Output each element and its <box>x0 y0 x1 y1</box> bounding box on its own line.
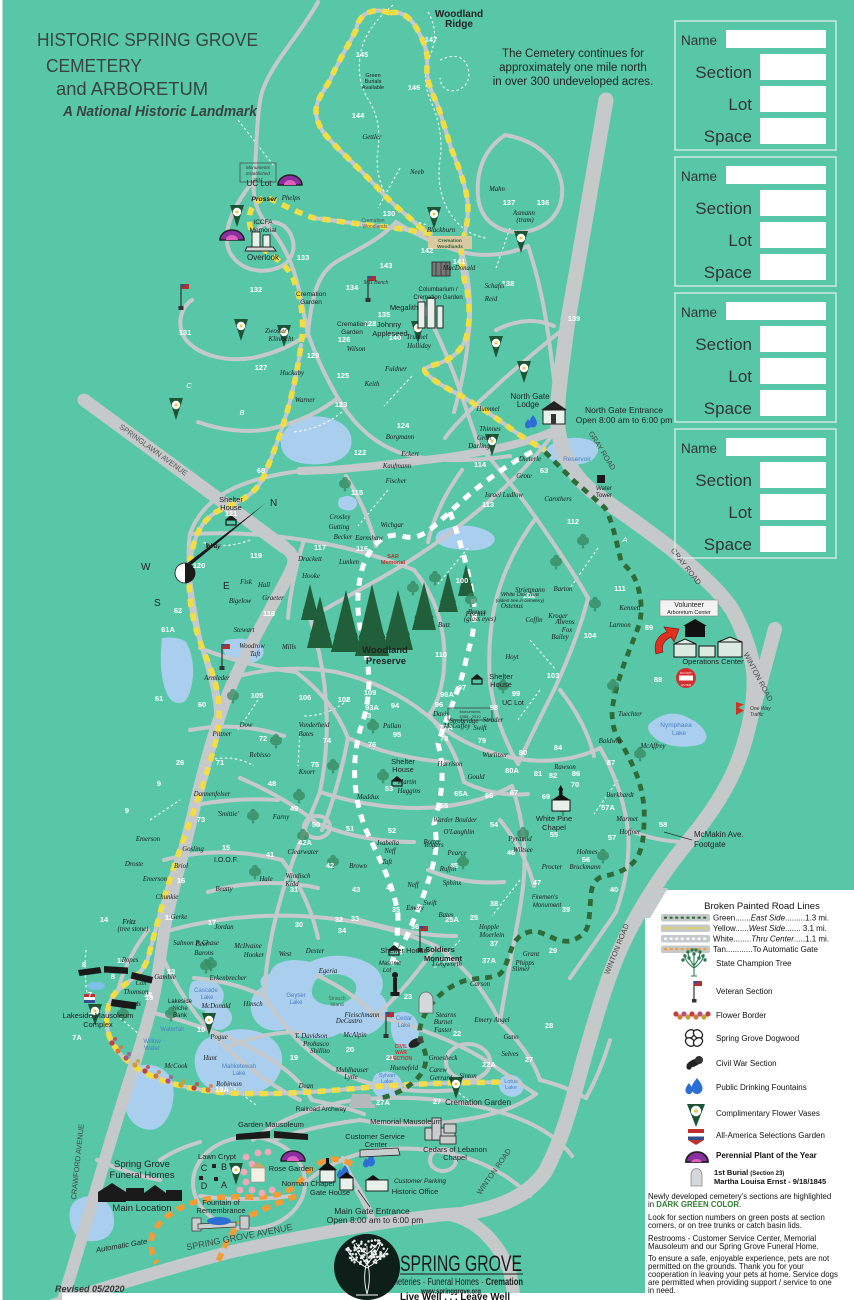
svg-text:Muhlhauser: Muhlhauser <box>335 1067 369 1074</box>
svg-text:Emerson: Emerson <box>142 876 168 883</box>
svg-text:81: 81 <box>534 769 542 778</box>
svg-text:Lake: Lake <box>232 1071 246 1077</box>
svg-text:Graeter: Graeter <box>262 595 284 602</box>
svg-text:Bates: Bates <box>298 731 313 738</box>
svg-text:Nymphaea: Nymphaea <box>660 722 692 729</box>
svg-text:Cascade: Cascade <box>194 988 218 994</box>
svg-text:38: 38 <box>490 899 498 908</box>
svg-text:Dieterle: Dieterle <box>518 456 541 463</box>
svg-text:Memorial: Memorial <box>381 560 406 566</box>
svg-text:8: 8 <box>82 960 86 969</box>
svg-text:Lake: Lake <box>200 995 214 1001</box>
svg-text:7A: 7A <box>72 1033 82 1042</box>
svg-text:in need.: in need. <box>648 1286 676 1295</box>
svg-text:57: 57 <box>608 833 616 842</box>
svg-text:(oldest tree in cemetery): (oldest tree in cemetery) <box>496 598 545 603</box>
svg-text:Gate House: Gate House <box>310 1188 350 1197</box>
svg-text:corners, or on tree trunks or: corners, or on tree trunks or catch basi… <box>648 1221 802 1230</box>
svg-text:Woodland: Woodland <box>362 645 408 656</box>
svg-text:Rawson: Rawson <box>553 764 576 771</box>
svg-text:146: 146 <box>408 83 421 92</box>
svg-text:Geyser: Geyser <box>286 993 305 999</box>
svg-text:Section: Section <box>695 335 752 354</box>
svg-text:Available: Available <box>362 85 384 91</box>
svg-text:UC Lot: UC Lot <box>502 700 524 707</box>
svg-text:28: 28 <box>545 1021 553 1030</box>
svg-text:98: 98 <box>490 703 498 712</box>
svg-text:N: N <box>270 498 277 509</box>
svg-text:7: 7 <box>88 990 92 999</box>
svg-text:Center: Center <box>365 1140 388 1149</box>
svg-text:78: 78 <box>440 734 448 743</box>
svg-text:(tree stone): (tree stone) <box>118 926 150 933</box>
svg-text:Schafer: Schafer <box>485 283 506 290</box>
svg-text:Taft: Taft <box>382 859 393 866</box>
svg-text:Zwoster: Zwoster <box>265 328 287 335</box>
svg-text:Lunken: Lunken <box>338 559 360 566</box>
svg-text:E: E <box>223 581 230 592</box>
svg-text:Strader: Strader <box>483 717 504 724</box>
svg-text:49: 49 <box>290 804 298 813</box>
svg-text:Name: Name <box>681 169 717 184</box>
svg-text:39: 39 <box>562 905 570 914</box>
svg-text:27A: 27A <box>376 1098 390 1107</box>
svg-text:Chapel: Chapel <box>542 823 566 832</box>
svg-text:Burkhardt: Burkhardt <box>606 792 635 799</box>
svg-text:C: C <box>201 1163 208 1173</box>
svg-text:Woodlands: Woodlands <box>363 224 388 230</box>
svg-text:Cremation Garden: Cremation Garden <box>445 1098 511 1107</box>
svg-text:35: 35 <box>392 905 400 914</box>
svg-text:Lot: Lot <box>728 503 752 522</box>
svg-text:Dexter: Dexter <box>305 948 325 955</box>
svg-text:House: House <box>220 503 242 512</box>
svg-text:Lake: Lake <box>289 1000 303 1006</box>
svg-text:Eckert: Eckert <box>400 451 420 458</box>
svg-text:Lakeside: Lakeside <box>168 999 193 1005</box>
svg-text:Chunkie: Chunkie <box>156 894 179 901</box>
svg-text:Historic Office: Historic Office <box>392 1187 439 1196</box>
svg-text:58: 58 <box>659 820 667 829</box>
svg-text:Davis: Davis <box>432 711 449 718</box>
svg-text:Sphinx: Sphinx <box>443 880 462 887</box>
svg-text:88: 88 <box>654 675 662 684</box>
svg-text:Grant: Grant <box>523 951 540 958</box>
svg-text:DO NOT: DO NOT <box>680 671 692 675</box>
svg-text:ICCFA: ICCFA <box>253 219 273 226</box>
svg-text:Emery Angel: Emery Angel <box>473 1017 509 1024</box>
svg-text:Dow: Dow <box>239 722 253 729</box>
svg-text:House: House <box>490 680 512 689</box>
svg-text:Briol: Briol <box>174 863 188 870</box>
svg-text:135: 135 <box>378 310 391 319</box>
svg-text:State Champion Tree: State Champion Tree <box>716 959 792 968</box>
svg-text:Baldwin: Baldwin <box>599 738 622 745</box>
svg-text:Main Location: Main Location <box>112 1203 171 1214</box>
svg-text:63: 63 <box>540 466 548 475</box>
svg-text:A: A <box>621 535 627 544</box>
svg-text:Huckaby: Huckaby <box>279 370 305 377</box>
svg-text:Armleder: Armleder <box>203 675 230 682</box>
svg-text:16: 16 <box>177 876 185 885</box>
svg-text:Lakeside Mausoleum: Lakeside Mausoleum <box>63 1011 134 1020</box>
svg-text:22: 22 <box>453 1029 461 1038</box>
svg-text:Slimer: Slimer <box>512 966 530 973</box>
svg-text:Railroad Archway: Railroad Archway <box>296 1106 347 1113</box>
svg-text:33: 33 <box>351 914 359 923</box>
svg-text:37A: 37A <box>482 956 496 965</box>
svg-text:Mahn: Mahn <box>488 186 505 193</box>
svg-text:Gosling: Gosling <box>182 846 204 853</box>
svg-text:117: 117 <box>314 543 326 552</box>
svg-text:Lot: Lot <box>383 968 392 974</box>
svg-text:15: 15 <box>222 843 230 852</box>
svg-text:104: 104 <box>584 631 597 640</box>
svg-text:D: D <box>201 1181 208 1191</box>
svg-text:Hopple: Hopple <box>478 924 499 931</box>
svg-text:47: 47 <box>533 878 541 887</box>
svg-text:Bates: Bates <box>438 912 453 919</box>
svg-text:30: 30 <box>295 920 303 929</box>
svg-text:Fuldner: Fuldner <box>384 366 407 373</box>
svg-text:Groh: Groh <box>477 435 492 442</box>
svg-text:Monument: Monument <box>533 903 562 909</box>
svg-text:A: A <box>221 1180 227 1190</box>
svg-text:Procter: Procter <box>541 864 563 871</box>
svg-text:Dannenfelser: Dannenfelser <box>193 791 231 798</box>
svg-text:Neeb: Neeb <box>409 169 425 176</box>
svg-text:79: 79 <box>478 736 486 745</box>
svg-text:41: 41 <box>266 850 274 859</box>
svg-text:Bigelow: Bigelow <box>229 598 252 605</box>
svg-text:147: 147 <box>425 35 438 44</box>
svg-text:in DARK GREEN COLOR.: in DARK GREEN COLOR. <box>648 1200 741 1209</box>
svg-text:36: 36 <box>411 922 419 931</box>
svg-text:Lot: Lot <box>728 95 752 114</box>
svg-text:Island: Island <box>330 1002 344 1008</box>
svg-text:137: 137 <box>503 198 516 207</box>
svg-text:Complimentary Flower Vases: Complimentary Flower Vases <box>716 1109 820 1118</box>
svg-text:Traffic: Traffic <box>750 712 764 718</box>
svg-text:Fisk: Fisk <box>239 579 253 586</box>
svg-text:Sinton: Sinton <box>459 1073 477 1080</box>
svg-text:O'Laughlin: O'Laughlin <box>444 829 476 836</box>
svg-text:Public Drinking Fountains: Public Drinking Fountains <box>716 1083 807 1092</box>
svg-text:67: 67 <box>510 788 518 797</box>
svg-text:Becker: Becker <box>334 534 353 541</box>
svg-text:Section: Section <box>695 63 752 82</box>
svg-text:Burnet: Burnet <box>434 1019 454 1026</box>
svg-text:Johnny: Johnny <box>377 320 401 329</box>
svg-text:Klinkicht: Klinkicht <box>268 336 295 343</box>
svg-text:144: 144 <box>352 111 365 120</box>
svg-text:Mausoleum and our Spring Grove: Mausoleum and our Spring Grove Funeral H… <box>648 1242 819 1251</box>
svg-text:8: 8 <box>111 972 115 981</box>
svg-text:Asmann: Asmann <box>512 210 536 217</box>
svg-text:Flower Border: Flower Border <box>716 1011 767 1020</box>
svg-text:Garden Mausoleum: Garden Mausoleum <box>238 1120 304 1129</box>
svg-text:Gamble: Gamble <box>154 974 176 981</box>
svg-text:Revised 05/2020: Revised 05/2020 <box>55 1284 125 1294</box>
svg-text:Cremation: Cremation <box>337 321 367 328</box>
svg-text:Megalith: Megalith <box>390 303 418 312</box>
svg-text:Norman Chapel: Norman Chapel <box>282 1179 335 1188</box>
svg-text:Hoyt: Hoyt <box>504 654 519 661</box>
svg-text:111: 111 <box>614 584 626 593</box>
svg-text:51: 51 <box>346 824 354 833</box>
svg-text:Cremation: Cremation <box>296 291 326 298</box>
svg-text:Hale: Hale <box>258 876 272 883</box>
svg-text:23: 23 <box>404 992 412 1001</box>
svg-text:Cedar: Cedar <box>396 1016 412 1022</box>
svg-text:Groesbeck: Groesbeck <box>429 1055 459 1062</box>
svg-text:Moerlein: Moerlein <box>479 932 506 939</box>
svg-text:B: B <box>239 408 244 417</box>
svg-text:Shillito: Shillito <box>310 1048 330 1055</box>
svg-text:34: 34 <box>338 926 347 935</box>
svg-text:Soldiers: Soldiers <box>425 945 455 954</box>
svg-text:Tuechter: Tuechter <box>618 711 642 718</box>
svg-text:Wiltsee: Wiltsee <box>513 847 533 854</box>
svg-text:Fox: Fox <box>561 627 573 634</box>
svg-text:Bruckmann: Bruckmann <box>569 864 601 871</box>
svg-text:Droste: Droste <box>124 861 143 868</box>
svg-text:Breuer: Breuer <box>468 609 487 616</box>
svg-text:Brown: Brown <box>349 863 367 870</box>
svg-text:Perennial Plant of the Year: Perennial Plant of the Year <box>716 1151 817 1160</box>
svg-text:93: 93 <box>363 711 371 720</box>
svg-text:Space: Space <box>704 263 752 282</box>
svg-text:Gettler: Gettler <box>362 134 382 141</box>
svg-text:75: 75 <box>311 760 319 769</box>
svg-text:87: 87 <box>607 758 615 767</box>
svg-text:Beatty: Beatty <box>215 886 233 893</box>
svg-text:Wichgar: Wichgar <box>380 522 403 529</box>
svg-text:94: 94 <box>391 701 400 710</box>
svg-text:Barons: Barons <box>194 950 214 957</box>
svg-text:Carothers: Carothers <box>544 496 572 503</box>
svg-text:Rose Garden: Rose Garden <box>269 1164 314 1173</box>
svg-text:Customer Parking: Customer Parking <box>394 1178 446 1185</box>
svg-text:Appleseed: Appleseed <box>372 329 407 338</box>
svg-text:McAlpin: McAlpin <box>342 1032 367 1039</box>
svg-text:72: 72 <box>259 734 267 743</box>
svg-text:96: 96 <box>435 700 443 709</box>
svg-text:Ruffin: Ruffin <box>439 866 457 873</box>
svg-text:Reid: Reid <box>484 296 498 303</box>
svg-text:130: 130 <box>383 209 396 218</box>
svg-text:Mahketewah: Mahketewah <box>222 1064 256 1070</box>
svg-text:Monuments: Monuments <box>246 165 271 170</box>
svg-text:48: 48 <box>268 779 276 788</box>
svg-text:North Gate Entrance: North Gate Entrance <box>585 405 663 415</box>
svg-text:70: 70 <box>571 780 579 789</box>
svg-text:and ARBORETUM: and ARBORETUM <box>56 78 208 99</box>
svg-text:McMakin Ave.: McMakin Ave. <box>694 830 744 839</box>
svg-text:132: 132 <box>250 285 263 294</box>
svg-text:Hooker: Hooker <box>243 952 265 959</box>
svg-text:Gano: Gano <box>503 1034 519 1041</box>
svg-text:DeCastro: DeCastro <box>335 1018 363 1025</box>
svg-text:C: C <box>186 381 192 390</box>
svg-text:27: 27 <box>525 1055 533 1064</box>
svg-text:Wilson: Wilson <box>347 346 366 353</box>
svg-text:127: 127 <box>255 363 268 372</box>
svg-text:26: 26 <box>176 758 184 767</box>
svg-text:Windisch: Windisch <box>286 873 312 880</box>
svg-text:West: West <box>279 951 293 958</box>
svg-text:53: 53 <box>385 784 393 793</box>
svg-text:142: 142 <box>421 246 434 255</box>
svg-text:133: 133 <box>297 253 310 262</box>
svg-text:Niche: Niche <box>172 1006 188 1012</box>
svg-text:76: 76 <box>368 740 376 749</box>
svg-text:Carson: Carson <box>470 981 491 988</box>
svg-text:Memorial: Memorial <box>250 227 277 234</box>
svg-text:Lake: Lake <box>397 1023 411 1029</box>
svg-text:Lot: Lot <box>728 367 752 386</box>
svg-text:McDonald: McDonald <box>200 1003 231 1010</box>
svg-text:All-America Selections Garden: All-America Selections Garden <box>716 1131 825 1140</box>
svg-text:100: 100 <box>456 576 469 585</box>
svg-text:9: 9 <box>157 779 161 788</box>
svg-text:32: 32 <box>335 915 343 924</box>
svg-text:40: 40 <box>610 885 618 894</box>
svg-text:Gould: Gould <box>468 774 486 781</box>
svg-text:Salmon P. Chase: Salmon P. Chase <box>173 940 219 947</box>
svg-text:Garden: Garden <box>341 329 363 336</box>
svg-text:43: 43 <box>352 885 360 894</box>
svg-text:Dean: Dean <box>298 1083 314 1090</box>
svg-text:Coffin: Coffin <box>526 617 544 624</box>
svg-text:99: 99 <box>512 689 520 698</box>
svg-text:Tower: Tower <box>596 493 612 499</box>
svg-text:Darling: Darling <box>467 443 490 450</box>
svg-text:125: 125 <box>337 371 350 380</box>
svg-text:Space: Space <box>704 399 752 418</box>
svg-text:Knorr: Knorr <box>298 769 316 776</box>
svg-text:84: 84 <box>554 743 563 752</box>
svg-text:Name: Name <box>681 441 717 456</box>
svg-text:42: 42 <box>326 861 334 870</box>
svg-text:Veteran Section: Veteran Section <box>716 987 772 996</box>
svg-text:Garden: Garden <box>300 299 322 306</box>
svg-text:Monument: Monument <box>424 954 462 963</box>
svg-text:Wray: Wray <box>205 543 221 550</box>
svg-text:Warner: Warner <box>295 397 315 404</box>
svg-text:Huenefeld: Huenefeld <box>389 1065 419 1072</box>
svg-text:44: 44 <box>386 883 395 892</box>
svg-text:68: 68 <box>257 466 265 475</box>
svg-text:89: 89 <box>645 623 653 632</box>
svg-text:74: 74 <box>323 736 332 745</box>
svg-text:Warder Boulder: Warder Boulder <box>433 817 477 824</box>
svg-text:Probasco: Probasco <box>302 1041 329 1048</box>
svg-text:Erkenbrecher: Erkenbrecher <box>208 975 246 982</box>
svg-text:Bailey: Bailey <box>551 634 569 641</box>
svg-text:Swift: Swift <box>473 725 488 732</box>
svg-text:Complex: Complex <box>83 1020 113 1029</box>
svg-text:Volunteer: Volunteer <box>674 602 704 609</box>
svg-text:Chapel: Chapel <box>443 1153 467 1162</box>
svg-text:Pyramid: Pyramid <box>507 836 532 843</box>
svg-text:145: 145 <box>356 50 369 59</box>
svg-text:Wurlitzer: Wurlitzer <box>482 752 508 759</box>
svg-text:20: 20 <box>346 1045 354 1054</box>
svg-text:25: 25 <box>470 913 478 922</box>
svg-text:Ahrens: Ahrens <box>554 619 574 626</box>
svg-text:Gerke: Gerke <box>171 914 188 921</box>
svg-text:Trunnel: Trunnel <box>406 334 427 341</box>
svg-text:Huggins: Huggins <box>396 788 420 795</box>
svg-text:Marmet: Marmet <box>615 816 639 823</box>
svg-text:Isabella: Isabella <box>376 840 399 847</box>
svg-text:Green.......East Side.........: Green.......East Side.........1.3 mi. <box>713 914 829 923</box>
svg-text:Farny: Farny <box>272 814 291 821</box>
svg-text:19: 19 <box>290 1053 298 1062</box>
svg-text:Pearce: Pearce <box>447 850 467 857</box>
svg-text:Established: Established <box>246 171 270 176</box>
svg-text:96A: 96A <box>440 690 454 699</box>
svg-text:Holliday: Holliday <box>406 343 432 350</box>
svg-text:50: 50 <box>312 820 320 829</box>
svg-text:Hoffner: Hoffner <box>618 829 640 836</box>
svg-text:95: 95 <box>393 730 401 739</box>
svg-text:Phipps: Phipps <box>515 960 535 967</box>
svg-text:131: 131 <box>179 328 192 337</box>
svg-text:Lake: Lake <box>672 730 686 737</box>
svg-text:McIlvaine: McIlvaine <box>233 943 262 950</box>
svg-text:Name: Name <box>681 33 717 48</box>
svg-text:(tram): (tram) <box>516 217 534 224</box>
svg-text:62: 62 <box>174 606 182 615</box>
svg-text:Ostenus: Ostenus <box>501 603 523 610</box>
svg-text:124: 124 <box>397 421 410 430</box>
svg-text:Lawn Crypt: Lawn Crypt <box>198 1152 237 1161</box>
svg-text:Mills: Mills <box>281 644 296 651</box>
svg-text:73: 73 <box>197 815 205 824</box>
svg-text:134: 134 <box>346 283 359 292</box>
svg-text:29: 29 <box>549 946 557 955</box>
svg-text:Broken Painted Road Lines: Broken Painted Road Lines <box>704 901 820 912</box>
svg-text:Swift: Swift <box>423 900 438 907</box>
svg-text:Remembrance: Remembrance <box>196 1206 245 1215</box>
svg-text:Cremation: Cremation <box>438 238 462 244</box>
svg-text:Civil War Section: Civil War Section <box>716 1059 777 1068</box>
svg-text:57A: 57A <box>601 803 615 812</box>
svg-text:Hooke: Hooke <box>301 573 320 580</box>
svg-text:Hummel: Hummel <box>475 406 499 413</box>
svg-text:Live Well . . . Leave Well: Live Well . . . Leave Well <box>400 1291 510 1300</box>
svg-text:Water: Water <box>144 1046 160 1052</box>
svg-text:Hall: Hall <box>257 582 270 589</box>
svg-text:105: 105 <box>251 691 264 700</box>
svg-text:Open 8:00 am to 6:00 pm: Open 8:00 am to 6:00 pm <box>576 415 672 425</box>
svg-text:Rogers: Rogers <box>423 842 444 849</box>
svg-text:71: 71 <box>216 758 224 767</box>
svg-text:Kidd: Kidd <box>284 881 299 888</box>
svg-text:82: 82 <box>549 771 557 780</box>
svg-text:Crosley: Crosley <box>330 514 352 521</box>
svg-text:White Pine: White Pine <box>536 814 572 823</box>
svg-text:65: 65 <box>440 801 448 810</box>
svg-text:136: 136 <box>537 198 550 207</box>
svg-text:Woodlands: Woodlands <box>437 244 463 250</box>
svg-text:Woodrow: Woodrow <box>239 643 265 650</box>
svg-text:Spring Grove: Spring Grove <box>114 1159 170 1170</box>
svg-text:Holmes: Holmes <box>576 849 598 856</box>
svg-text:Section: Section <box>695 199 752 218</box>
